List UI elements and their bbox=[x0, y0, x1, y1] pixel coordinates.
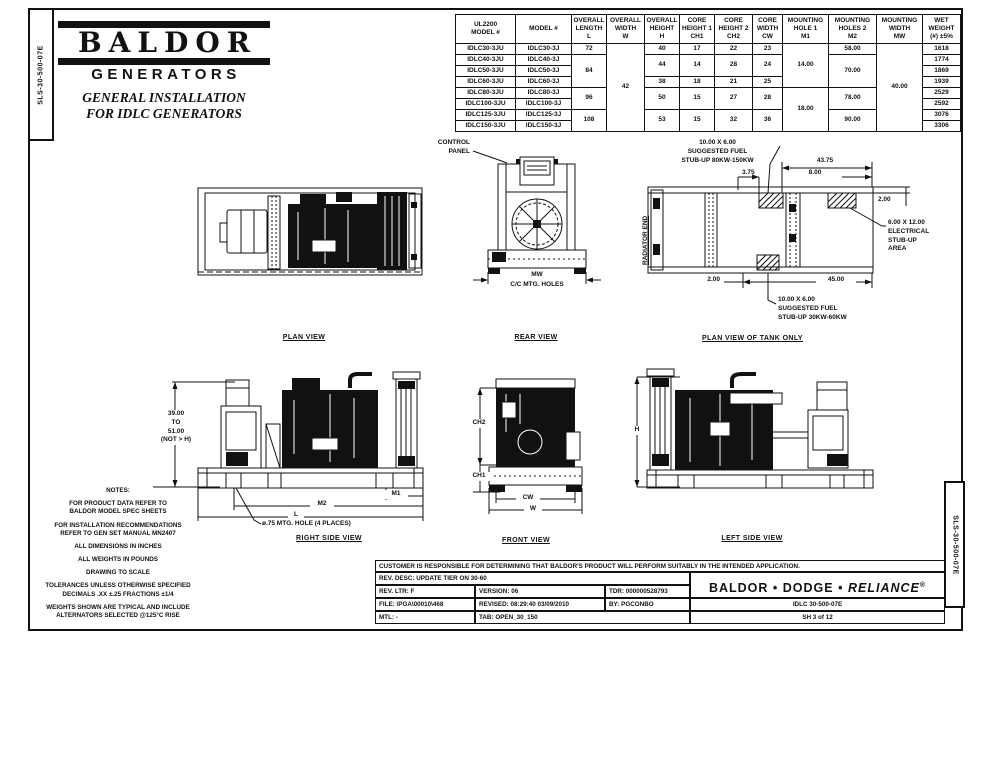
cell: 17 bbox=[680, 44, 715, 55]
title-block: CUSTOMER IS RESPONSIBLE FOR DETERMINING … bbox=[375, 560, 945, 624]
tank-dim-2-00-right: 2.00 bbox=[878, 196, 908, 205]
revised-by: BY: PGCONBO bbox=[605, 598, 690, 611]
spec-table: UL2200 MODEL # MODEL # OVERALL LENGTH L … bbox=[455, 14, 961, 132]
version: VERSION: 06 bbox=[475, 585, 605, 598]
brand-dodge: DODGE bbox=[783, 581, 834, 595]
cell: 58.00 bbox=[829, 44, 877, 55]
note-item: TOLERANCES UNLESS OTHERWISE SPECIFIED DE… bbox=[28, 582, 208, 598]
cell: 1939 bbox=[923, 77, 961, 88]
cell: 28 bbox=[715, 55, 753, 77]
tank-dim-43-75: 43.75 bbox=[800, 157, 850, 166]
cell: 2592 bbox=[923, 99, 961, 110]
disclaimer: CUSTOMER IS RESPONSIBLE FOR DETERMINING … bbox=[375, 560, 945, 572]
note-item: ALL WEIGHTS IN POUNDS bbox=[28, 556, 208, 564]
tank-view-label: PLAN VIEW OF TANK ONLY bbox=[695, 334, 810, 343]
tank-dim-8-00: 8.00 bbox=[798, 169, 832, 178]
cell: IDLC100-3JU bbox=[456, 99, 516, 110]
cell: 23 bbox=[753, 44, 783, 55]
revised: REVISED: 08:29:40 03/09/2010 bbox=[475, 598, 605, 611]
sheet-title: GENERAL INSTALLATION FOR IDLC GENERATORS bbox=[58, 90, 270, 121]
cell: 70.00 bbox=[829, 55, 877, 88]
electrical-stubup-callout: 6.00 X 12.00 ELECTRICAL STUB-UP AREA bbox=[888, 219, 958, 254]
rear-dim-mw-note: C/C MTG. HOLES bbox=[490, 281, 584, 290]
cell: 18 bbox=[680, 77, 715, 88]
cell: 15 bbox=[680, 88, 715, 110]
cell: 96 bbox=[572, 88, 607, 110]
cell: 3076 bbox=[923, 110, 961, 121]
table-row: IDLC30-3JU IDLC30-3J 72 42 40 17 22 23 1… bbox=[456, 44, 961, 55]
tank-dim-2-00-left: 2.00 bbox=[692, 276, 720, 285]
front-dim-w: W bbox=[524, 505, 542, 514]
right-side-dim-l: L bbox=[288, 511, 304, 520]
cell: 24 bbox=[753, 55, 783, 77]
cell: 78.00 bbox=[829, 88, 877, 110]
file-path: FILE: \PGA\00010\468 bbox=[375, 598, 475, 611]
baldor-logo: BALDOR GENERATORS GENERAL INSTALLATION F… bbox=[58, 20, 270, 121]
right-side-view-label: RIGHT SIDE VIEW bbox=[283, 534, 375, 543]
rev-desc: REV. DESC: UPDATE TIER ON 30-60 bbox=[375, 572, 690, 585]
col-header-model: MODEL # bbox=[516, 15, 572, 44]
cell: 36 bbox=[753, 110, 783, 132]
tdr: TDR: 000000528793 bbox=[605, 585, 690, 598]
fuel-stubup-bottom-callout: 10.00 X 6.00 SUGGESTED FUEL STUB-UP 30KW… bbox=[778, 296, 888, 322]
cell: 50 bbox=[645, 88, 680, 110]
cell: 25 bbox=[753, 77, 783, 88]
cell: IDLC80-3J bbox=[516, 88, 572, 99]
cell: IDLC30-3J bbox=[516, 44, 572, 55]
note-item: WEIGHTS SHOWN ARE TYPICAL AND INCLUDE AL… bbox=[28, 604, 208, 620]
cell: 27 bbox=[715, 88, 753, 110]
drawing-sheet: SLS-30-500-07E SLS-30-500-07E BALDOR GEN… bbox=[0, 0, 990, 765]
plan-view-drawing bbox=[198, 188, 422, 275]
brand-reliance: RELIANCE bbox=[848, 581, 920, 595]
sheet-code-tab-left: SLS-30-500-07E bbox=[28, 8, 54, 141]
right-side-dim-m1: M1 bbox=[384, 490, 408, 499]
radiator-end-label: RADIATOR END bbox=[642, 216, 649, 265]
cell: IDLC150-3J bbox=[516, 121, 572, 132]
left-side-view-label: LEFT SIDE VIEW bbox=[708, 534, 796, 543]
cell: IDLC125-3J bbox=[516, 110, 572, 121]
cell: 40 bbox=[645, 44, 680, 55]
brand-separator: • bbox=[773, 581, 778, 595]
notes-title: NOTES: bbox=[28, 487, 208, 495]
col-header-mw: MOUNTING WIDTH MW bbox=[877, 15, 923, 44]
brand-logo-row: BALDOR • DODGE • RELIANCE® bbox=[690, 572, 945, 598]
col-header-ch2: CORE HEIGHT 2 CH2 bbox=[715, 15, 753, 44]
col-header-ul2200: UL2200 MODEL # bbox=[456, 15, 516, 44]
cell: 14.00 bbox=[783, 44, 829, 88]
cell: 2529 bbox=[923, 88, 961, 99]
cell: 42 bbox=[607, 44, 645, 132]
cell: 1774 bbox=[923, 55, 961, 66]
cell: 108 bbox=[572, 110, 607, 132]
cell: 32 bbox=[715, 110, 753, 132]
cell: IDLC50-3J bbox=[516, 66, 572, 77]
notes: NOTES: FOR PRODUCT DATA REFER TO BALDOR … bbox=[28, 487, 208, 625]
cell: IDLC60-3J bbox=[516, 77, 572, 88]
control-panel-callout: CONTROL PANEL bbox=[420, 139, 470, 157]
cell: IDLC125-3JU bbox=[456, 110, 516, 121]
front-view-label: FRONT VIEW bbox=[490, 536, 562, 545]
cell: 84 bbox=[572, 55, 607, 88]
col-header-cw: CORE WIDTH CW bbox=[753, 15, 783, 44]
note-item: ALL DIMENSIONS IN INCHES bbox=[28, 543, 208, 551]
left-side-view-drawing bbox=[635, 369, 874, 488]
cell: IDLC80-3JU bbox=[456, 88, 516, 99]
cell: 72 bbox=[572, 44, 607, 55]
cell: 28 bbox=[753, 88, 783, 110]
registered-mark: ® bbox=[920, 582, 926, 589]
col-header-length: OVERALL LENGTH L bbox=[572, 15, 607, 44]
cell: 1618 bbox=[923, 44, 961, 55]
front-dim-ch2: CH2 bbox=[464, 419, 494, 428]
col-header-weight: WET WEIGHT (#) ±5% bbox=[923, 15, 961, 44]
cell: 44 bbox=[645, 55, 680, 77]
cell: IDLC40-3J bbox=[516, 55, 572, 66]
sheet-number: SH 3 of 12 bbox=[690, 611, 945, 624]
col-header-width: OVERALL WIDTH W bbox=[607, 15, 645, 44]
col-header-ch1: CORE HEIGHT 1 CH1 bbox=[680, 15, 715, 44]
plan-view-label: PLAN VIEW bbox=[256, 333, 352, 342]
cell: 3306 bbox=[923, 121, 961, 132]
note-item: FOR INSTALLATION RECOMMENDATIONS REFER T… bbox=[28, 522, 208, 538]
brand-division: GENERATORS bbox=[58, 66, 270, 83]
col-header-m1: MOUNTING HOLE 1 M1 bbox=[783, 15, 829, 44]
cell: IDLC150-3JU bbox=[456, 121, 516, 132]
tank-view-drawing bbox=[648, 146, 910, 304]
cell: IDLC40-3JU bbox=[456, 55, 516, 66]
cell: 22 bbox=[715, 44, 753, 55]
rear-view-label: REAR VIEW bbox=[492, 333, 580, 342]
cell: IDLC50-3JU bbox=[456, 66, 516, 77]
cell: 38 bbox=[645, 77, 680, 88]
front-dim-ch1: CH1 bbox=[464, 472, 494, 481]
col-header-height: OVERALL HEIGHT H bbox=[645, 15, 680, 44]
brand-separator: • bbox=[838, 581, 843, 595]
cell: 18.00 bbox=[783, 88, 829, 132]
fuel-stubup-top-callout: 10.00 X 6.00 SUGGESTED FUEL STUB-UP 80KW… bbox=[645, 139, 790, 165]
rear-dim-mw: MW bbox=[512, 271, 562, 280]
doc-code: IDLC 30-500-07E bbox=[690, 598, 945, 611]
header-row: UL2200 MODEL # MODEL # OVERALL LENGTH L … bbox=[456, 15, 961, 44]
logo-bar-bottom bbox=[58, 58, 270, 65]
cell: IDLC100-3J bbox=[516, 99, 572, 110]
sheet-code-text: SLS-30-500-07E bbox=[38, 45, 45, 105]
left-side-dim-h: H bbox=[628, 426, 646, 435]
cell: IDLC60-3JU bbox=[456, 77, 516, 88]
cell: 1869 bbox=[923, 66, 961, 77]
brand-name: BALDOR bbox=[58, 29, 270, 57]
front-dim-cw: CW bbox=[516, 494, 540, 503]
cell: 21 bbox=[715, 77, 753, 88]
cell: 14 bbox=[680, 55, 715, 77]
tank-dim-3-75: 3.75 bbox=[742, 169, 772, 178]
cell: IDLC30-3JU bbox=[456, 44, 516, 55]
cell: 90.00 bbox=[829, 110, 877, 132]
col-header-m2: MOUNTING HOLES 2 M2 bbox=[829, 15, 877, 44]
right-side-dim-m2: M2 bbox=[310, 500, 334, 509]
cell: 40.00 bbox=[877, 44, 923, 132]
right-side-height-dim: 39.00 TO 51.00 (NOT > H) bbox=[148, 410, 204, 445]
mtl: MTL: - bbox=[375, 611, 475, 624]
cell: 53 bbox=[645, 110, 680, 132]
note-item: FOR PRODUCT DATA REFER TO BALDOR MODEL S… bbox=[28, 500, 208, 516]
brand-baldor: BALDOR bbox=[709, 581, 768, 595]
cell: 15 bbox=[680, 110, 715, 132]
tab: TAB: OPEN_30_150 bbox=[475, 611, 690, 624]
note-item: DRAWING TO SCALE bbox=[28, 569, 208, 577]
rev-ltr: REV. LTR: F bbox=[375, 585, 475, 598]
tank-dim-45-00: 45.00 bbox=[816, 276, 856, 285]
rear-view-drawing bbox=[473, 151, 601, 284]
mtg-hole-note: ø.75 MTG. HOLE (4 PLACES) bbox=[262, 520, 402, 529]
